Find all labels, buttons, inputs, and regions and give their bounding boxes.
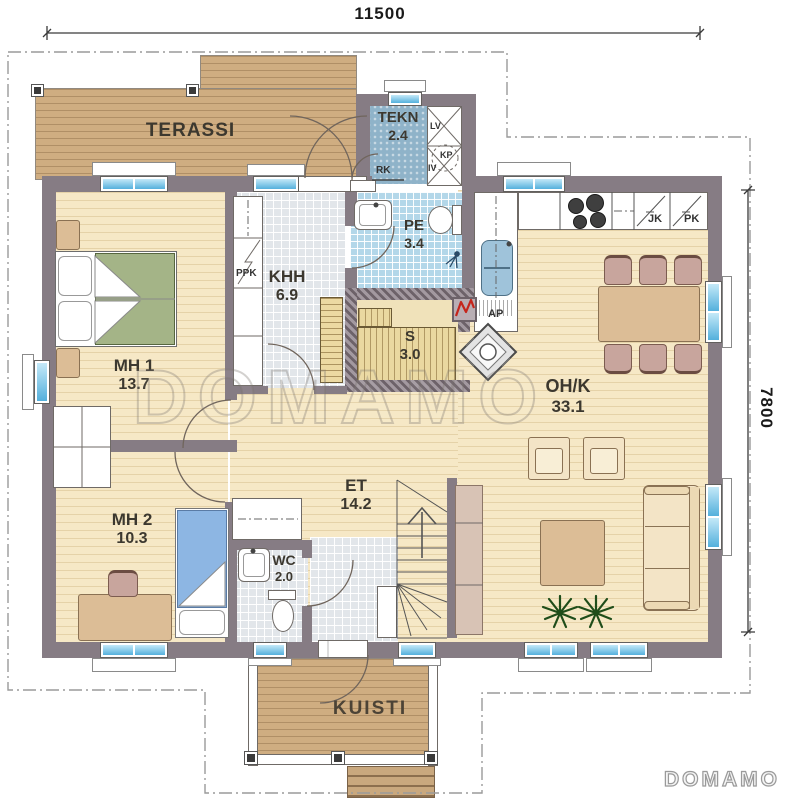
kuisti-post	[331, 751, 345, 765]
room-name: WC	[262, 552, 306, 569]
room-area: 2.0	[262, 569, 306, 584]
room-name: ET	[326, 476, 386, 496]
sauna-ladder	[320, 297, 343, 383]
room-name: TERASSI	[118, 120, 263, 142]
wc-label: WC 2.0	[262, 552, 306, 584]
dining-chair	[639, 255, 667, 285]
mh2-desk	[78, 594, 172, 641]
sauna-label: S 3.0	[388, 328, 432, 363]
kp-label: KP	[440, 150, 453, 160]
wall-khh-bottom-a	[232, 386, 268, 394]
pe-label: PE 3.4	[392, 217, 436, 251]
room-area: 14.2	[326, 496, 386, 515]
rk-label: RK	[376, 165, 390, 176]
lv-label: LV	[430, 121, 441, 131]
mh1-nightstand	[56, 220, 80, 250]
mh2-desk-chair	[108, 570, 138, 597]
wall-sauna-bottom	[345, 380, 470, 392]
window-sill	[497, 162, 571, 176]
wall-right	[708, 176, 722, 658]
dining-chair	[639, 344, 667, 374]
room-area: 10.3	[96, 530, 168, 549]
room-name: PE	[392, 217, 436, 235]
room-area: 3.4	[392, 235, 436, 252]
pe-sink-basin	[359, 204, 386, 226]
dining-chair	[674, 255, 702, 285]
window-sill	[22, 354, 34, 410]
mh2-bed-foot-pillow	[179, 610, 225, 635]
room-name: OH/K	[530, 376, 606, 397]
armchair-cushion	[535, 448, 563, 474]
sauna-bench-step	[358, 308, 392, 327]
sofa-cushion-line	[645, 568, 689, 569]
terrace-post	[31, 84, 44, 97]
wall-sauna-left	[345, 288, 357, 392]
dimension-line-right	[741, 186, 755, 636]
dining-chair	[674, 344, 702, 374]
front-door	[318, 640, 368, 658]
jk-label: JK	[648, 213, 662, 225]
kuisti-post	[424, 751, 438, 765]
ppk-label: PPK	[236, 268, 257, 279]
khh-label: KHH 6.9	[258, 267, 316, 306]
ohk-window-bottom	[524, 642, 578, 658]
terrace-deck-upper	[200, 55, 357, 91]
window-sill	[722, 276, 732, 348]
mh1-window-top	[100, 176, 168, 192]
coffee-table	[540, 520, 605, 586]
room-name: KUISTI	[300, 698, 440, 720]
mh1-wardrobe	[53, 406, 111, 488]
wc-toilet-bowl	[272, 600, 294, 632]
room-area: 13.7	[98, 376, 170, 395]
sofa-armrest	[644, 486, 690, 495]
sofa-window-right	[705, 484, 722, 550]
khh-window-top	[253, 176, 299, 192]
dimension-right: 7800	[754, 368, 776, 448]
floor-plan: TERASSI TEKN 2.4 PE 3.4 KHH 6.9 S 3.0 MH…	[0, 0, 792, 800]
window-sill	[92, 658, 176, 672]
room-area: 2.4	[368, 127, 428, 144]
room-area: 3.0	[388, 346, 432, 364]
iv-label: IV	[428, 163, 437, 173]
terrace-post	[186, 84, 199, 97]
dining-table	[598, 286, 700, 342]
wall-pe-kitchen	[462, 192, 474, 300]
sofa-cushion-line	[645, 526, 689, 527]
dining-chair	[604, 344, 632, 374]
et-window-bottom	[398, 642, 436, 658]
ohk-label: OH/K 33.1	[530, 376, 606, 417]
coat-closet	[455, 485, 483, 635]
window-sill	[247, 164, 305, 176]
room-name: S	[388, 328, 432, 346]
ap-label: AP	[488, 308, 503, 320]
sofa-armrest	[644, 601, 690, 610]
dining-window-right	[705, 281, 722, 343]
pk-label: PK	[684, 213, 699, 225]
room-area: 6.9	[258, 287, 316, 306]
kuisti-steps	[347, 766, 435, 798]
room-name: TEKN	[368, 109, 428, 127]
dimension-top: 11500	[330, 4, 430, 24]
window-sill	[248, 658, 292, 666]
mh1-pillow	[58, 256, 92, 296]
kitchen-window	[503, 176, 565, 192]
window-sill	[92, 162, 176, 176]
room-name: MH 2	[96, 510, 168, 530]
wc-window-bottom	[253, 642, 287, 658]
understairs-closet	[377, 586, 397, 638]
window-sill	[518, 658, 584, 672]
kuisti-post	[244, 751, 258, 765]
armchair-cushion	[590, 448, 618, 474]
mh1-bed-blanket	[95, 253, 175, 345]
wall-wc-right-b	[302, 606, 312, 648]
mh2-bed-blanket	[177, 510, 227, 608]
kuisti-rail-left	[248, 658, 258, 766]
kuisti-label: KUISTI	[300, 698, 440, 720]
tekn-door-opening	[350, 180, 376, 192]
hall-closet	[232, 498, 302, 540]
mh2-label: MH 2 10.3	[96, 510, 168, 549]
dining-chair	[604, 255, 632, 285]
tekn-hvac-closet	[427, 106, 462, 186]
kitchen-sink-divider	[484, 267, 510, 269]
mh1-label: MH 1 13.7	[98, 356, 170, 395]
et-label: ET 14.2	[326, 476, 386, 515]
mh1-nightstand	[56, 348, 80, 378]
room-area: 33.1	[530, 397, 606, 417]
brand-logo: DOMAMO	[630, 768, 780, 792]
window-sill	[384, 80, 426, 92]
room-name: MH 1	[98, 356, 170, 376]
window-sill	[722, 478, 732, 556]
window-sill	[393, 658, 441, 666]
tekn-label: TEKN 2.4	[368, 109, 428, 143]
terassi-label: TERASSI	[118, 120, 263, 142]
sofa-back	[689, 487, 699, 609]
wc-toilet-tank	[268, 590, 296, 600]
mh1-pillow	[58, 301, 92, 341]
mh1-window-left	[34, 360, 50, 404]
wall-mh1-mh2	[111, 440, 237, 452]
tekn-window	[388, 92, 422, 106]
wall-khh-bottom-b	[314, 386, 347, 394]
window-sill	[586, 658, 652, 672]
room-name: KHH	[258, 267, 316, 287]
pe-toilet-tank	[452, 205, 462, 235]
dimension-line-top	[43, 26, 704, 40]
sauna-heater	[452, 297, 477, 322]
mh2-window-bottom	[100, 642, 168, 658]
kitchen-counter-top	[518, 192, 708, 230]
ohk-window-bottom	[590, 642, 648, 658]
